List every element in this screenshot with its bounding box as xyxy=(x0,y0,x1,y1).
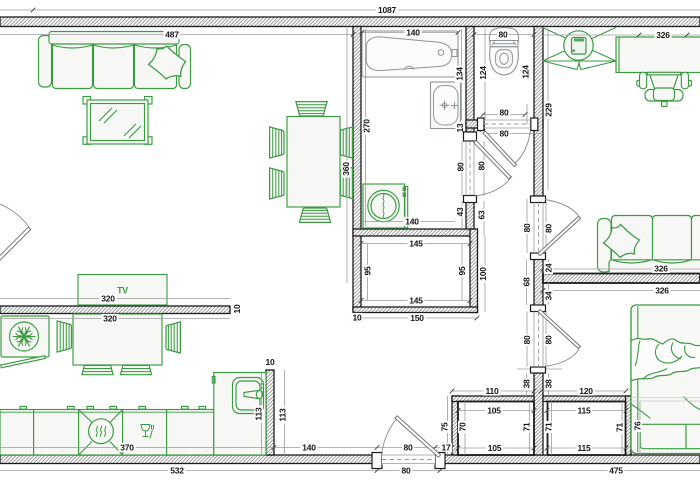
svg-text:71: 71 xyxy=(543,422,553,432)
svg-text:100: 100 xyxy=(478,267,488,281)
svg-text:115: 115 xyxy=(577,405,591,415)
svg-text:80: 80 xyxy=(403,442,413,452)
svg-text:140: 140 xyxy=(405,216,419,226)
svg-text:145: 145 xyxy=(409,238,423,248)
svg-text:532: 532 xyxy=(170,465,184,475)
svg-text:24: 24 xyxy=(543,263,553,273)
svg-text:71: 71 xyxy=(521,422,531,432)
svg-text:43: 43 xyxy=(455,207,465,217)
svg-text:487: 487 xyxy=(165,29,179,39)
svg-text:34: 34 xyxy=(543,291,553,301)
svg-text:134: 134 xyxy=(454,67,464,81)
svg-text:140: 140 xyxy=(406,27,420,37)
svg-text:229: 229 xyxy=(543,103,553,117)
svg-text:80: 80 xyxy=(522,223,532,233)
svg-text:360: 360 xyxy=(341,162,351,176)
svg-text:80: 80 xyxy=(499,128,509,138)
svg-text:38: 38 xyxy=(543,379,553,389)
svg-text:70: 70 xyxy=(457,422,467,432)
svg-text:110: 110 xyxy=(485,386,499,396)
svg-text:10: 10 xyxy=(232,304,242,314)
svg-text:120: 120 xyxy=(579,386,593,396)
svg-text:326: 326 xyxy=(655,285,669,295)
svg-text:10: 10 xyxy=(352,312,362,322)
svg-text:68: 68 xyxy=(521,277,531,287)
svg-text:17: 17 xyxy=(441,442,451,452)
svg-text:80: 80 xyxy=(543,224,553,234)
svg-text:475: 475 xyxy=(609,465,623,475)
svg-text:140: 140 xyxy=(302,442,316,452)
svg-text:80: 80 xyxy=(499,107,509,117)
svg-text:124: 124 xyxy=(478,66,488,80)
svg-text:TV: TV xyxy=(117,286,128,296)
svg-text:270: 270 xyxy=(361,119,371,133)
svg-text:80: 80 xyxy=(543,335,553,345)
svg-text:80: 80 xyxy=(476,161,486,171)
svg-text:75: 75 xyxy=(439,422,449,432)
svg-text:150: 150 xyxy=(410,313,424,323)
svg-text:105: 105 xyxy=(488,443,502,453)
svg-text:10: 10 xyxy=(265,357,275,367)
svg-text:115: 115 xyxy=(577,443,591,453)
svg-text:326: 326 xyxy=(656,30,670,40)
svg-text:13: 13 xyxy=(455,123,465,133)
svg-text:124: 124 xyxy=(520,65,530,79)
svg-text:80: 80 xyxy=(522,335,532,345)
svg-text:63: 63 xyxy=(476,210,486,220)
svg-text:105: 105 xyxy=(487,405,501,415)
svg-text:320: 320 xyxy=(103,313,117,323)
svg-text:326: 326 xyxy=(654,263,668,273)
svg-text:76: 76 xyxy=(632,421,642,431)
svg-text:80: 80 xyxy=(455,162,465,172)
svg-text:80: 80 xyxy=(498,29,508,39)
svg-text:370: 370 xyxy=(120,442,134,452)
svg-text:320: 320 xyxy=(101,293,115,303)
svg-text:95: 95 xyxy=(362,266,372,276)
svg-text:71: 71 xyxy=(614,423,624,433)
svg-text:80: 80 xyxy=(401,465,411,475)
svg-text:38: 38 xyxy=(521,379,531,389)
svg-text:1087: 1087 xyxy=(378,5,397,15)
svg-text:95: 95 xyxy=(457,266,467,276)
svg-text:113: 113 xyxy=(277,408,287,422)
svg-text:145: 145 xyxy=(409,295,423,305)
svg-text:113: 113 xyxy=(253,407,263,421)
